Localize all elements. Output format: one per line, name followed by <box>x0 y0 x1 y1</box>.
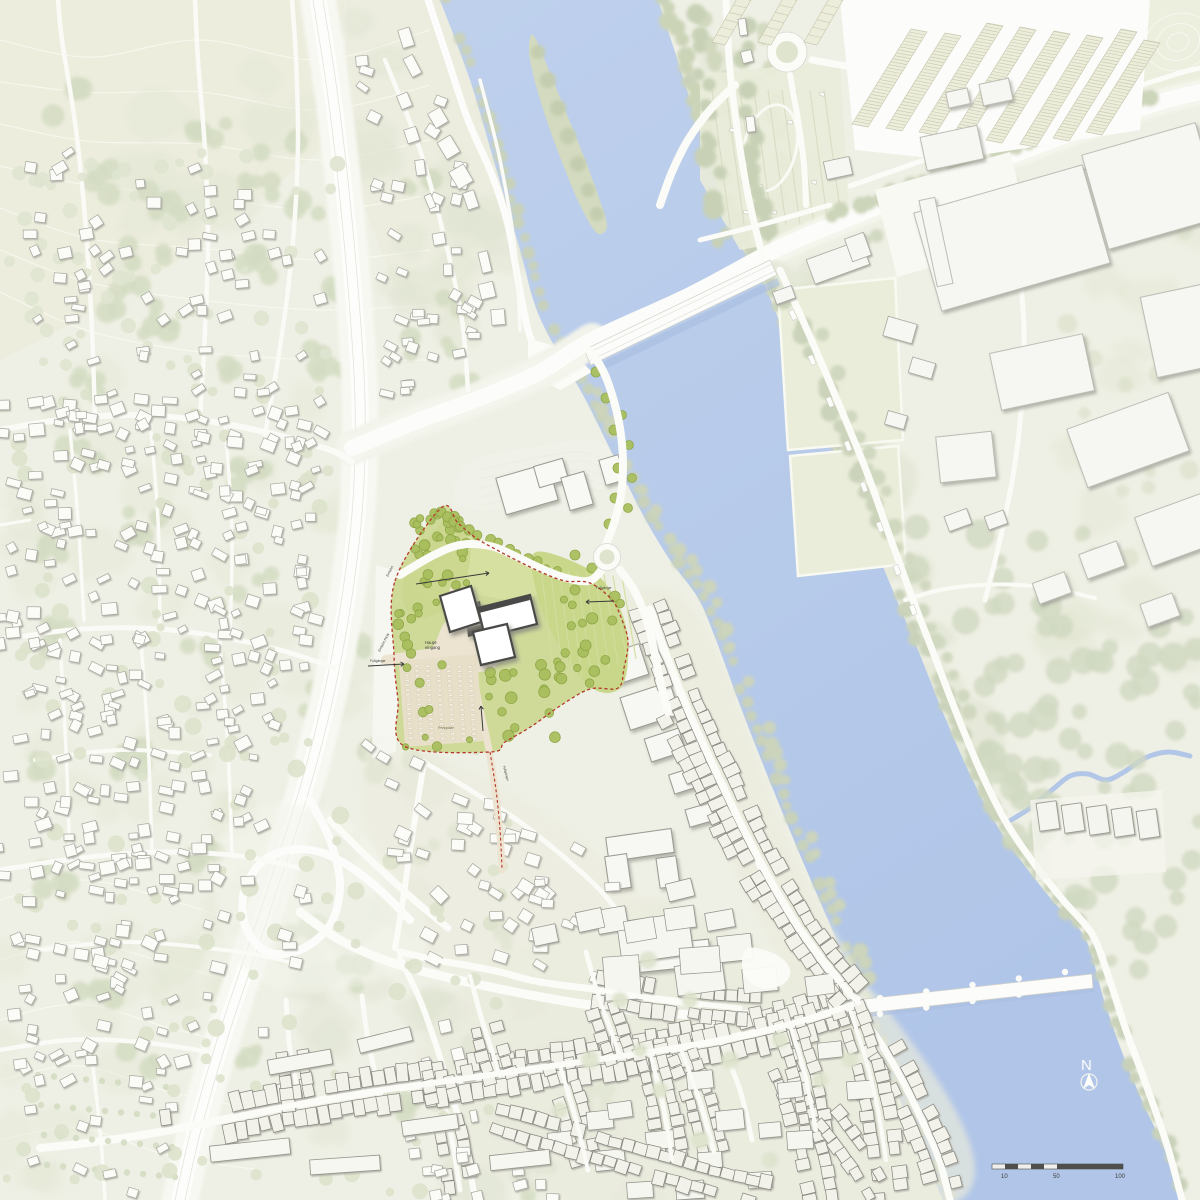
svg-text:10: 10 <box>1001 1174 1008 1180</box>
svg-text:50: 50 <box>1053 1174 1060 1180</box>
svg-text:eingang: eingang <box>425 645 441 650</box>
svg-text:Fußgänger: Fußgänger <box>370 659 387 663</box>
svg-text:100: 100 <box>1115 1174 1126 1180</box>
svg-text:N: N <box>1081 1057 1092 1074</box>
svg-text:Parkplatz: Parkplatz <box>438 726 454 730</box>
svg-text:Fußgänger: Fußgänger <box>596 586 613 590</box>
